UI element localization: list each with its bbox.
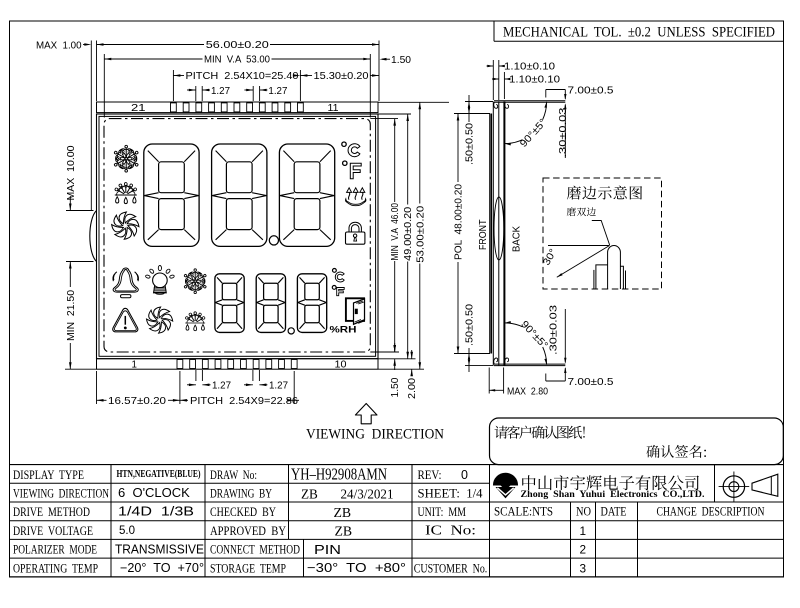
svg-text:SCALE:NTS: SCALE:NTS	[494, 505, 553, 519]
svg-text:TRANSMISSIVE: TRANSMISSIVE	[115, 541, 204, 556]
svg-text:PIN: PIN	[314, 542, 341, 557]
svg-text:DRIVE VOLTAGE: DRIVE VOLTAGE	[13, 524, 93, 538]
svg-text:ZB: ZB	[301, 486, 318, 501]
svg-text:1: 1	[580, 524, 587, 538]
svg-text:.50±0.50: .50±0.50	[464, 122, 475, 165]
svg-text:ZB: ZB	[334, 505, 352, 520]
svg-text:1.50: 1.50	[391, 55, 411, 66]
svg-text:VIEWING DIRECTION: VIEWING DIRECTION	[306, 426, 444, 442]
svg-text:CONNECT METHOD: CONNECT METHOD	[210, 543, 300, 557]
svg-text:STORAGE TEMP: STORAGE TEMP	[210, 561, 286, 575]
svg-text:UNIT: MM: UNIT: MM	[418, 505, 467, 519]
svg-text:1.27: 1.27	[268, 86, 287, 97]
svg-text:1.10±0.10: 1.10±0.10	[504, 62, 555, 73]
svg-text:1: 1	[132, 360, 137, 371]
svg-text:2.00: 2.00	[407, 377, 418, 399]
svg-text:MAX 2.80: MAX 2.80	[507, 386, 548, 397]
svg-text:ZB: ZB	[335, 524, 353, 539]
svg-text:.50±0.50: .50±0.50	[464, 303, 475, 346]
svg-text:FRONT: FRONT	[478, 219, 489, 250]
svg-text:APPROVED BY: APPROVED BY	[210, 524, 286, 538]
svg-text:MIN 21.50: MIN 21.50	[66, 289, 77, 341]
svg-text:Zhong Shan Yuhui Electronic: Zhong Shan Yuhui Electronics CO.,LTD.	[521, 489, 706, 500]
svg-text:CUSTOMER No.: CUSTOMER No.	[414, 561, 488, 575]
svg-text:VIEWING DIRECTION: VIEWING DIRECTION	[13, 487, 109, 501]
svg-text:.30±0.03: .30±0.03	[558, 107, 569, 158]
svg-text:DRAWING BY: DRAWING BY	[210, 487, 272, 501]
svg-text:MIN V.A 46.00: MIN V.A 46.00	[390, 203, 401, 261]
svg-text:CHANGE DESCRIPTION: CHANGE DESCRIPTION	[657, 505, 765, 519]
svg-text:7.00±0.5: 7.00±0.5	[568, 377, 614, 388]
svg-text:PITCH 2.54X9=22.86: PITCH 2.54X9=22.86	[190, 396, 298, 407]
svg-text:0: 0	[461, 468, 468, 482]
svg-text:10: 10	[335, 360, 348, 371]
svg-text:POL 48.00±0.20: POL 48.00±0.20	[453, 183, 464, 260]
svg-text:56.00±0.20: 56.00±0.20	[206, 40, 269, 51]
svg-text:2: 2	[580, 543, 587, 557]
svg-text:MAX 10.00: MAX 10.00	[66, 145, 77, 201]
svg-text:MIN V.A 53.00: MIN V.A 53.00	[204, 55, 270, 66]
svg-text:DRAW No:: DRAW No:	[210, 468, 257, 482]
svg-text:PITCH 2.54X10=25.40: PITCH 2.54X10=25.40	[186, 71, 299, 82]
svg-text:1.50: 1.50	[390, 377, 401, 398]
svg-text:IC No:: IC No:	[425, 522, 476, 537]
svg-text:MECHANICAL TOL. ±0.2 UNLESS: MECHANICAL TOL. ±0.2 UNLESS SPECIFIED	[503, 24, 775, 41]
svg-text:3: 3	[580, 561, 587, 575]
svg-text:24/3/2021: 24/3/2021	[341, 486, 394, 501]
svg-text:DATE: DATE	[601, 505, 627, 519]
svg-text:.30±0.03: .30±0.03	[549, 304, 560, 355]
svg-text:OPERATING TEMP: OPERATING TEMP	[13, 561, 98, 575]
svg-text:YH–H92908AMN: YH–H92908AMN	[291, 465, 387, 484]
svg-text:POLARIZER MODE: POLARIZER MODE	[13, 543, 97, 557]
svg-text:49.00±0.20: 49.00±0.20	[403, 206, 414, 261]
svg-text:5.0: 5.0	[119, 525, 135, 537]
svg-text:1.27: 1.27	[269, 381, 288, 392]
svg-text:DISPLAY TYPE: DISPLAY TYPE	[13, 468, 84, 482]
svg-text:6 O'CLOCK: 6 O'CLOCK	[118, 485, 190, 500]
svg-text:−30° TO +80°: −30° TO +80°	[307, 560, 406, 575]
svg-text:11: 11	[328, 103, 339, 114]
svg-text:1/4D 1/3B: 1/4D 1/3B	[118, 504, 194, 519]
svg-text:SHEET: 1/4: SHEET: 1/4	[418, 487, 484, 501]
svg-text:15.30±0.20: 15.30±0.20	[314, 71, 369, 82]
svg-text:CHECKED BY: CHECKED BY	[210, 505, 276, 519]
svg-text:7.00±0.5: 7.00±0.5	[568, 85, 614, 96]
svg-text:1.10±0.10: 1.10±0.10	[509, 75, 560, 86]
svg-text:53.00±0.20: 53.00±0.20	[415, 205, 426, 263]
svg-text:DRIVE METHOD: DRIVE METHOD	[13, 505, 90, 519]
svg-text:−20° TO +70°: −20° TO +70°	[120, 561, 204, 575]
svg-text:%RH: %RH	[330, 325, 357, 335]
svg-text:NO: NO	[576, 505, 591, 519]
svg-text:21: 21	[131, 103, 146, 114]
svg-text:MAX 1.00: MAX 1.00	[36, 40, 82, 51]
svg-text:BACK: BACK	[512, 226, 523, 252]
svg-text:1.27: 1.27	[211, 86, 230, 97]
svg-text:1.27: 1.27	[212, 381, 231, 392]
svg-text:16.57±0.20: 16.57±0.20	[108, 396, 166, 407]
svg-text:HTN,NEGATIVE(BLUE): HTN,NEGATIVE(BLUE)	[117, 469, 201, 480]
svg-text:REV:: REV:	[418, 468, 442, 482]
